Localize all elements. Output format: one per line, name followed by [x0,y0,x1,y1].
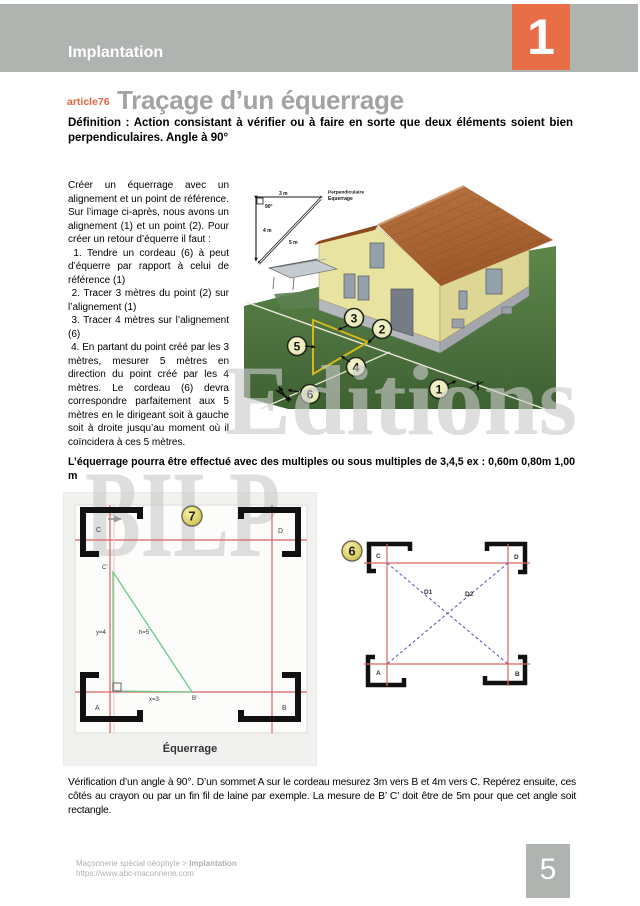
svg-text:B: B [515,671,520,678]
svg-text:B: B [282,705,287,712]
svg-text:C: C [96,527,101,534]
svg-text:h=5: h=5 [139,630,150,636]
svg-text:A: A [95,705,100,712]
svg-text:Équerrage: Équerrage [163,742,217,755]
svg-text:C’: C’ [102,565,108,571]
svg-text:D: D [278,528,283,535]
svg-text:4 m: 4 m [263,228,272,234]
svg-text:6: 6 [348,544,355,559]
svg-text:D: D [514,554,519,561]
svg-text:7: 7 [188,509,195,524]
svg-text:x=3: x=3 [149,697,160,703]
svg-text:Equerrage: Equerrage [328,196,353,202]
svg-text:3 m: 3 m [279,191,288,197]
svg-text:90°: 90° [265,204,273,210]
svg-text:A: A [376,670,381,677]
svg-text:y=4: y=4 [96,630,107,636]
svg-text:B’: B’ [192,696,197,702]
svg-text:5 m: 5 m [289,240,298,246]
svg-text:C: C [376,553,381,560]
svg-text:D1: D1 [424,589,433,596]
svg-text:3: 3 [351,312,358,326]
svg-text:2: 2 [379,323,386,337]
svg-text:D2: D2 [465,591,474,598]
svg-text:Perpendiculaire: Perpendiculaire [328,190,364,196]
